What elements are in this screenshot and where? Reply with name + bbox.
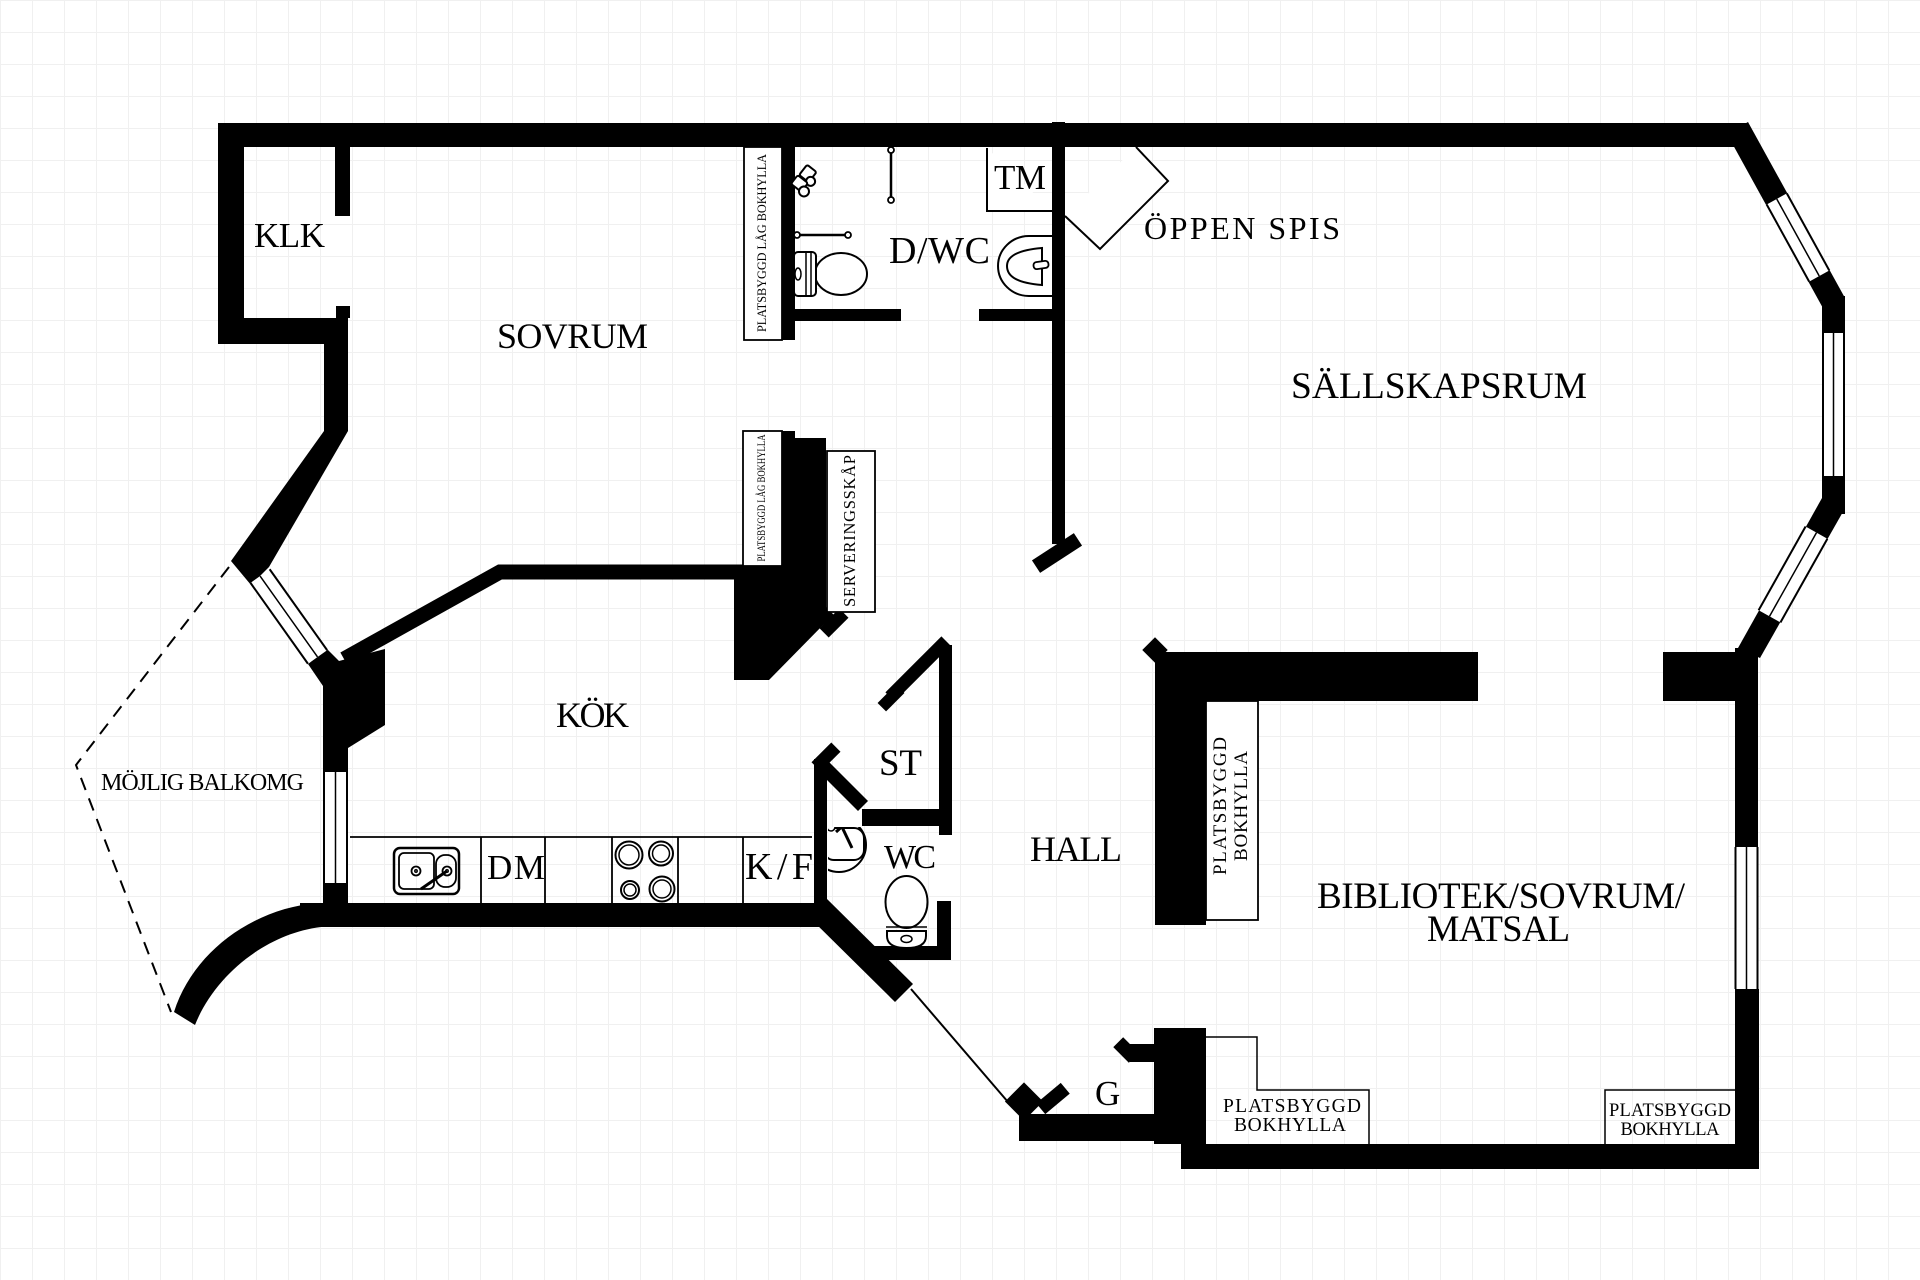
svg-text:PLATSBYGGD LÅG BOKHYLLA: PLATSBYGGD LÅG BOKHYLLA (755, 154, 769, 332)
svg-text:G: G (1095, 1074, 1120, 1113)
svg-text:KLK: KLK (254, 216, 325, 255)
svg-text:MÖJLIG BALKOMG: MÖJLIG BALKOMG (101, 770, 304, 796)
svg-text:SERVERINGSSKÅP: SERVERINGSSKÅP (840, 455, 859, 607)
svg-text:ST: ST (879, 743, 922, 784)
svg-text:BOKHYLLA: BOKHYLLA (1231, 751, 1252, 861)
svg-text:SÄLLSKAPSRUM: SÄLLSKAPSRUM (1291, 366, 1587, 407)
svg-text:KÖK: KÖK (556, 695, 629, 735)
svg-text:HALL: HALL (1030, 829, 1122, 869)
svg-text:BOKHYLLA: BOKHYLLA (1234, 1115, 1346, 1136)
svg-text:PLATSBYGGD: PLATSBYGGD (1223, 1096, 1361, 1117)
svg-text:PLATSBYGGD: PLATSBYGGD (1609, 1101, 1731, 1121)
svg-text:ÖPPEN SPIS: ÖPPEN SPIS (1144, 210, 1340, 246)
svg-text:DM: DM (487, 848, 545, 887)
svg-text:K/F: K/F (745, 846, 813, 888)
svg-text:BOKHYLLA: BOKHYLLA (1621, 1120, 1721, 1140)
svg-text:D/WC: D/WC (889, 230, 990, 272)
svg-text:WC: WC (884, 839, 936, 876)
svg-text:TM: TM (994, 158, 1046, 197)
svg-text:SOVRUM: SOVRUM (497, 316, 648, 356)
svg-text:PLATSBYGGD: PLATSBYGGD (1210, 737, 1231, 875)
svg-text:MATSAL: MATSAL (1427, 908, 1570, 949)
svg-text:PLATSBYGGD LÅG BOKHYLLA: PLATSBYGGD LÅG BOKHYLLA (754, 434, 768, 561)
